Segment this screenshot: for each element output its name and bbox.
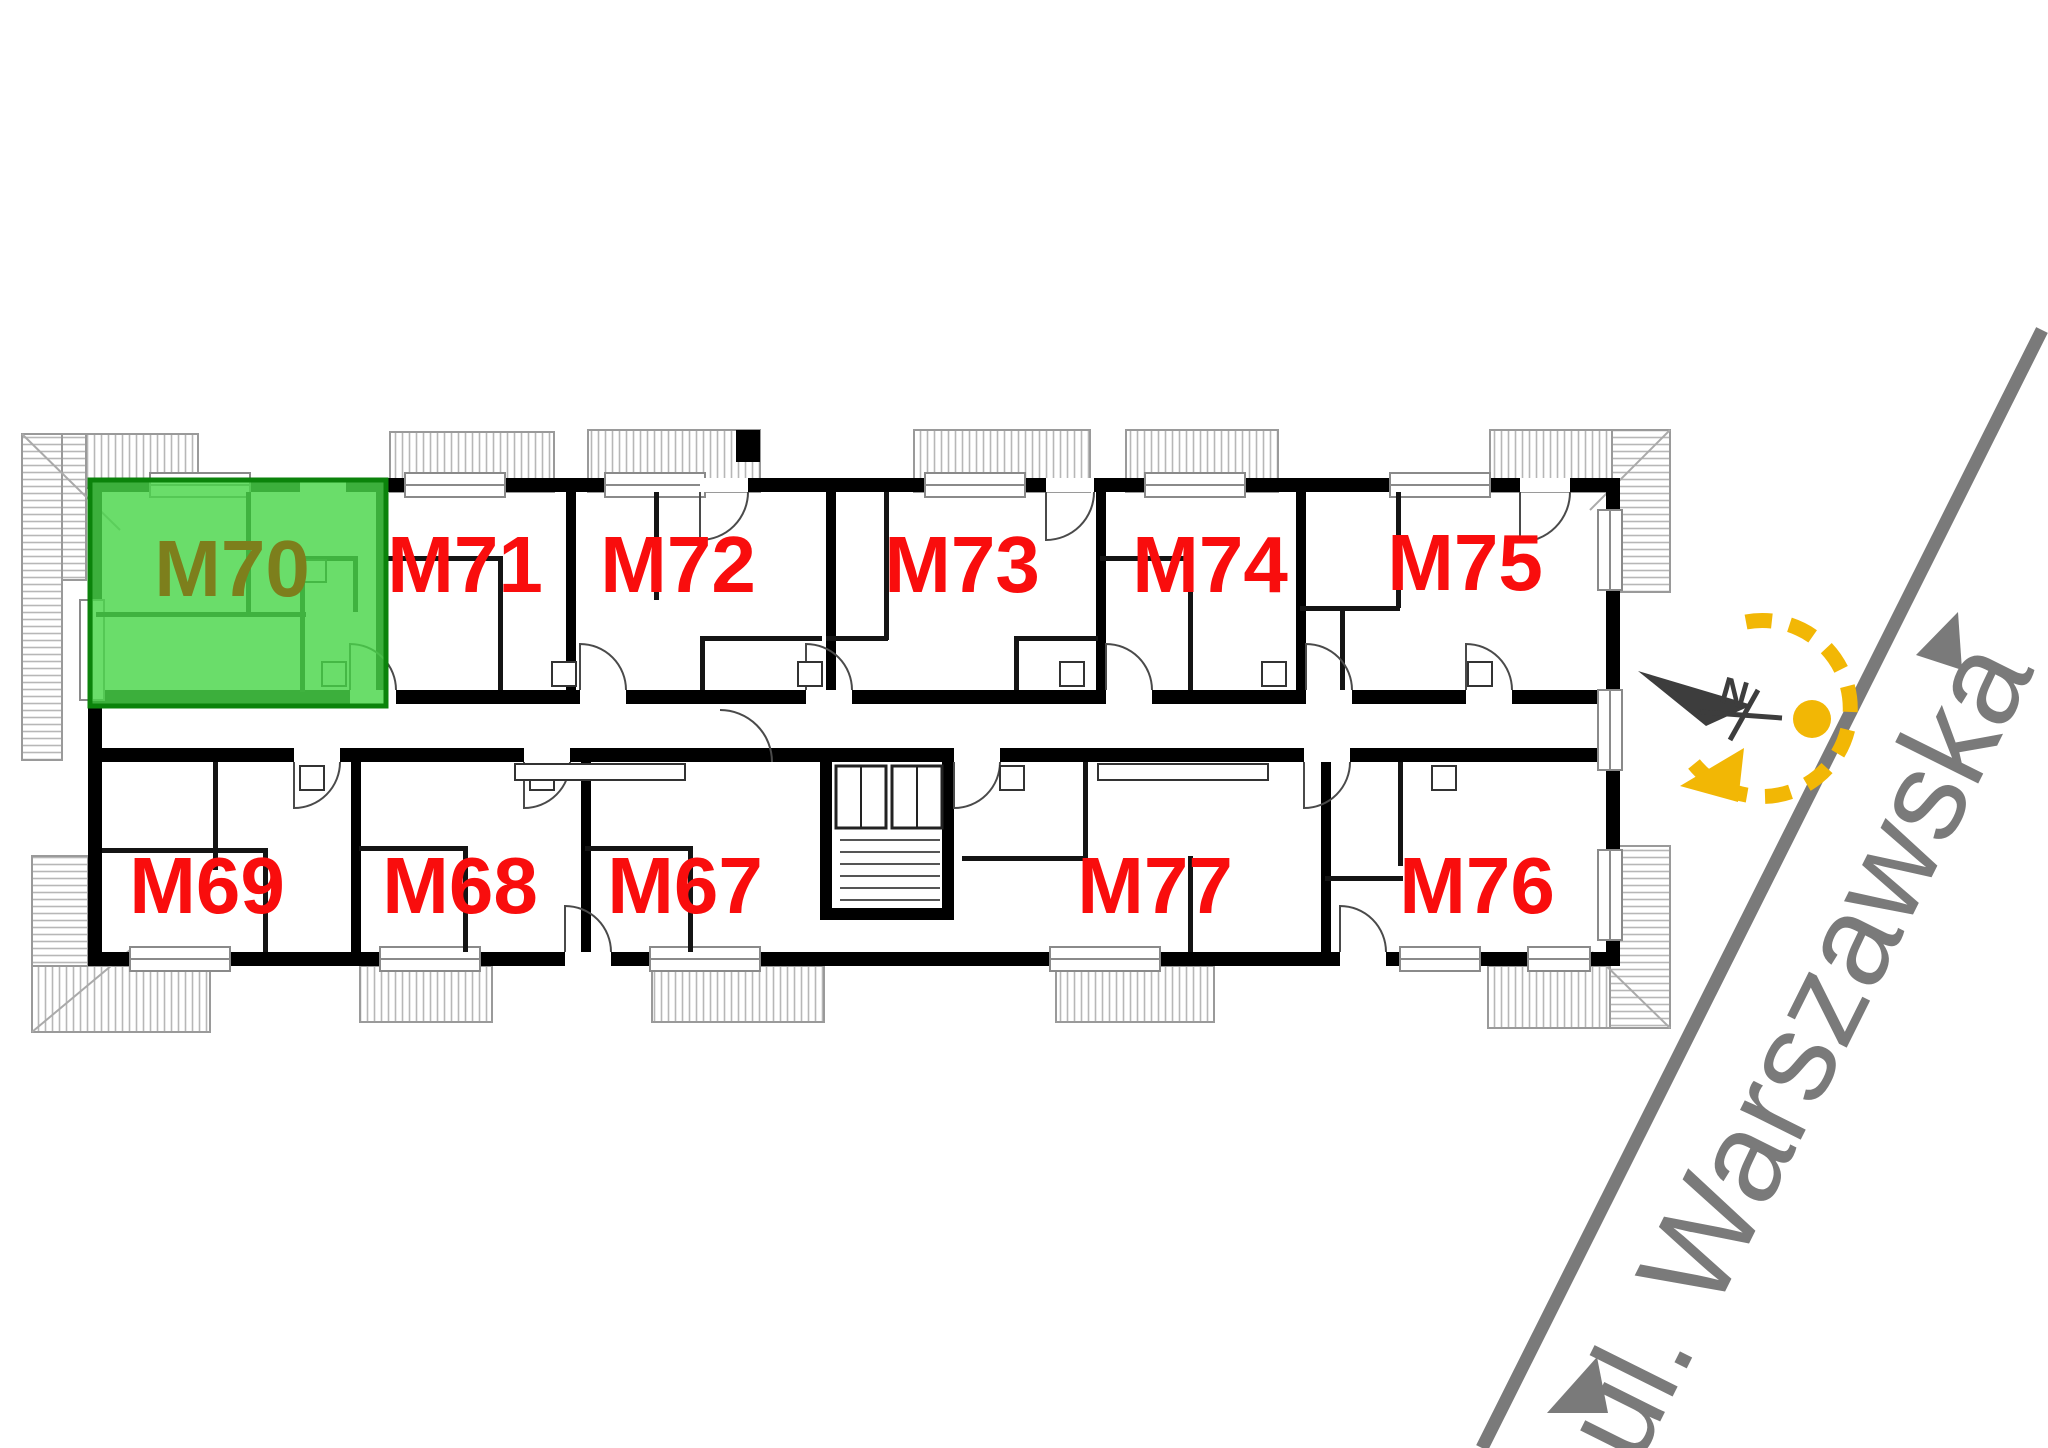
unit-label-m73[interactable]: M73 [884,520,1040,609]
sun-dot-icon [1793,700,1831,738]
unit-label-m67[interactable]: M67 [607,841,763,930]
unit-label-m72[interactable]: M72 [600,520,756,609]
entrance-steps [652,966,824,1022]
sun-arrow-icon [1680,748,1744,802]
unit-label-m74[interactable]: M74 [1132,520,1288,609]
stairs [840,840,940,900]
wall-bottom [88,952,1620,966]
wall-core-bottom [820,908,954,920]
wall-core-left [820,762,832,920]
street: ul. Warszawska [1482,330,2048,1448]
balcony-bottom-m77 [1056,966,1214,1022]
wall-divider-m77-m76 [1321,762,1331,952]
wall-divider-m74-m75 [1296,492,1306,690]
unit-label-m71[interactable]: M71 [387,520,543,609]
roof-bottom-left [32,966,210,1032]
floorplan-page: M70 M71 M72 M73 M74 M75 M69 M68 M67 M77 … [0,0,2048,1448]
street-line [1482,330,2042,1448]
unit-label-m76[interactable]: M76 [1399,841,1555,930]
compass: N [1638,620,1850,802]
wall-divider-m71-m72 [566,492,576,690]
chimney [736,430,760,462]
stair-elevator-core [836,766,942,900]
roof-left-strip-low [22,434,62,760]
corridor-wardrobe-1 [515,764,685,780]
wall-core-right [942,762,954,920]
unit-label-m69[interactable]: M69 [129,841,285,930]
unit-label-m68[interactable]: M68 [382,841,538,930]
wall-divider-m73-m74 [1096,492,1106,690]
unit-label-m75[interactable]: M75 [1387,518,1543,607]
balcony-bottom-m68 [360,966,492,1022]
unit-label-m70[interactable]: M70 [154,524,310,613]
wall-divider-m68-m67 [581,762,591,952]
unit-label-m77[interactable]: M77 [1077,841,1233,930]
corridor-wardrobe-2 [1098,764,1268,780]
wall-divider-m72-m73 [826,492,836,690]
wall-divider-m69-m68 [351,762,361,952]
floor-plan-svg: M70 M71 M72 M73 M74 M75 M69 M68 M67 M77 … [0,0,2048,1448]
